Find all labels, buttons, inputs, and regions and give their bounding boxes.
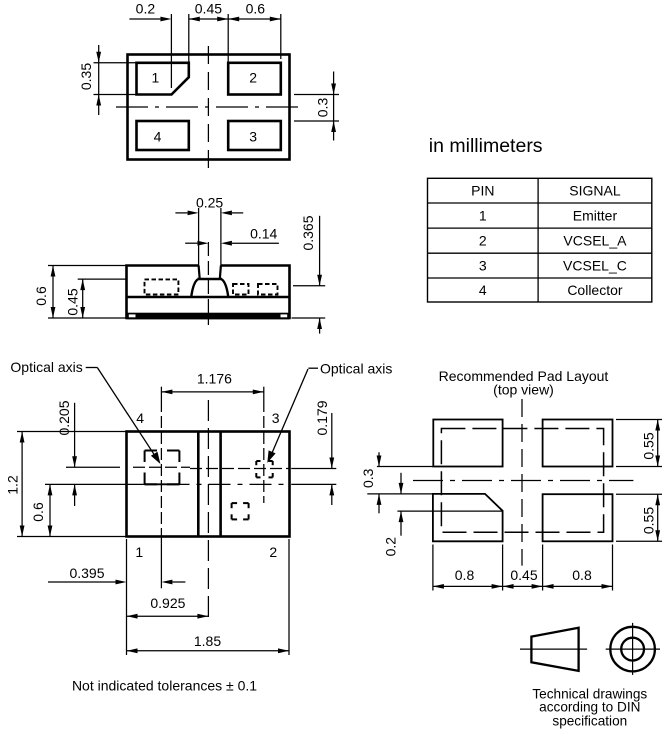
svg-text:0.25: 0.25 — [196, 195, 223, 211]
svg-text:SIGNAL: SIGNAL — [569, 183, 621, 199]
svg-text:1: 1 — [135, 544, 143, 560]
svg-text:3: 3 — [272, 410, 280, 426]
svg-text:Optical axis: Optical axis — [320, 360, 392, 376]
svg-text:Not indicated tolerances ± 0.1: Not indicated tolerances ± 0.1 — [72, 677, 257, 693]
svg-text:1: 1 — [479, 208, 487, 224]
svg-text:4: 4 — [479, 282, 487, 298]
svg-text:0.2: 0.2 — [136, 1, 156, 17]
svg-text:2: 2 — [479, 233, 487, 249]
svg-text:0.45: 0.45 — [510, 567, 537, 583]
svg-text:2: 2 — [269, 544, 277, 560]
svg-text:0.2: 0.2 — [383, 537, 399, 557]
svg-text:0.179: 0.179 — [314, 400, 330, 435]
svg-text:0.3: 0.3 — [360, 468, 376, 488]
svg-text:1: 1 — [152, 70, 160, 86]
svg-text:3: 3 — [249, 129, 257, 145]
svg-text:0.55: 0.55 — [641, 432, 657, 459]
svg-text:0.45: 0.45 — [65, 288, 81, 315]
svg-text:0.6: 0.6 — [33, 286, 49, 306]
svg-text:Optical axis: Optical axis — [10, 359, 82, 375]
svg-text:3: 3 — [479, 258, 487, 274]
svg-text:PIN: PIN — [471, 183, 494, 199]
svg-text:0.8: 0.8 — [572, 567, 592, 583]
svg-text:2: 2 — [249, 70, 257, 86]
svg-text:1.176: 1.176 — [197, 371, 232, 387]
svg-text:4: 4 — [136, 410, 144, 426]
svg-text:(top view): (top view) — [493, 382, 554, 398]
svg-text:VCSEL_A: VCSEL_A — [563, 233, 627, 249]
svg-text:1.2: 1.2 — [4, 475, 20, 495]
svg-text:Collector: Collector — [567, 282, 623, 298]
svg-text:in millimeters: in millimeters — [429, 135, 543, 157]
svg-text:0.45: 0.45 — [195, 1, 222, 17]
svg-text:0.205: 0.205 — [56, 400, 72, 435]
svg-text:VCSEL_C: VCSEL_C — [563, 258, 627, 274]
svg-text:1.85: 1.85 — [194, 633, 221, 649]
svg-text:4: 4 — [154, 129, 162, 145]
svg-text:Emitter: Emitter — [573, 208, 618, 224]
svg-text:0.3: 0.3 — [315, 98, 331, 118]
svg-text:0.55: 0.55 — [641, 507, 657, 534]
svg-text:0.6: 0.6 — [30, 502, 46, 522]
svg-text:0.395: 0.395 — [69, 565, 104, 581]
svg-text:specification: specification — [552, 713, 627, 728]
svg-text:0.925: 0.925 — [150, 595, 185, 611]
svg-text:0.365: 0.365 — [300, 215, 316, 250]
svg-text:0.35: 0.35 — [78, 63, 94, 90]
svg-text:0.6: 0.6 — [246, 1, 266, 17]
svg-text:0.8: 0.8 — [455, 567, 475, 583]
svg-text:0.14: 0.14 — [250, 226, 277, 242]
